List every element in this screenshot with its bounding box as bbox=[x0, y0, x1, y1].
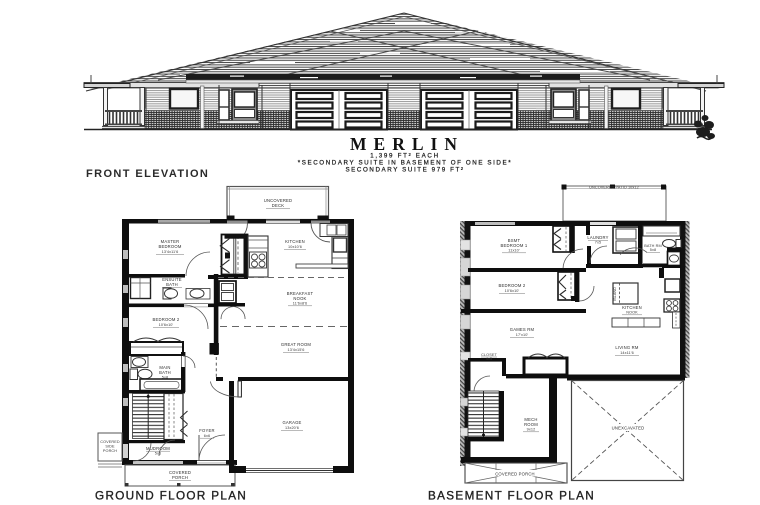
svg-text:13'4x15'6: 13'4x15'6 bbox=[288, 348, 305, 352]
svg-text:*SECONDARY SUITE IN BASEMENT O: *SECONDARY SUITE IN BASEMENT OF ONE SIDE… bbox=[298, 160, 512, 167]
svg-text:BEDROOM 2: BEDROOM 2 bbox=[153, 317, 180, 322]
svg-text:MERLIN: MERLIN bbox=[350, 134, 464, 154]
svg-text:BATH: BATH bbox=[159, 370, 171, 375]
svg-text:KITCHEN: KITCHEN bbox=[285, 239, 305, 244]
svg-text:FRONT ELEVATION: FRONT ELEVATION bbox=[86, 168, 209, 180]
svg-text:GARAGE: GARAGE bbox=[282, 420, 301, 425]
svg-text:11'6x8'6: 11'6x8'6 bbox=[293, 302, 307, 306]
svg-text:9x12: 9x12 bbox=[527, 428, 536, 432]
svg-text:10x10'6: 10x10'6 bbox=[288, 245, 302, 249]
svg-text:1,399 FT² EACH: 1,399 FT² EACH bbox=[370, 153, 440, 160]
svg-text:5x6: 5x6 bbox=[155, 452, 161, 456]
svg-text:GAMES RM: GAMES RM bbox=[510, 327, 535, 332]
svg-text:11x10': 11x10' bbox=[508, 249, 520, 253]
svg-text:ROOM: ROOM bbox=[524, 422, 538, 427]
svg-text:10'6x10': 10'6x10' bbox=[159, 323, 174, 327]
svg-text:GROUND FLOOR PLAN: GROUND FLOOR PLAN bbox=[95, 490, 247, 503]
svg-text:14x11'6: 14x11'6 bbox=[620, 351, 634, 355]
svg-text:13x20'6: 13x20'6 bbox=[285, 426, 299, 430]
svg-text:4x5: 4x5 bbox=[486, 357, 492, 361]
svg-text:BEDROOM 1: BEDROOM 1 bbox=[501, 243, 528, 248]
svg-text:COVERED: COVERED bbox=[100, 440, 120, 444]
svg-text:DECK: DECK bbox=[272, 203, 284, 208]
svg-text:SIDE: SIDE bbox=[105, 445, 115, 449]
svg-text:UNCOVERED PATIO 10x12: UNCOVERED PATIO 10x12 bbox=[589, 186, 639, 190]
svg-text:COVERED PORCH: COVERED PORCH bbox=[495, 472, 535, 477]
svg-text:PORCH: PORCH bbox=[172, 475, 188, 480]
svg-text:BATH: BATH bbox=[166, 282, 178, 287]
svg-text:GREAT ROOM: GREAT ROOM bbox=[281, 342, 312, 347]
svg-text:7x5: 7x5 bbox=[595, 241, 601, 245]
svg-text:LAUNDRY: LAUNDRY bbox=[587, 235, 608, 240]
svg-text:ISLAND: ISLAND bbox=[613, 287, 617, 301]
svg-text:LIVING RM: LIVING RM bbox=[615, 345, 639, 350]
svg-text:10'6x10': 10'6x10' bbox=[505, 289, 520, 293]
svg-text:13'4x11'6: 13'4x11'6 bbox=[162, 250, 179, 254]
svg-text:BASEMENT FLOOR PLAN: BASEMENT FLOOR PLAN bbox=[428, 490, 595, 503]
svg-text:17'x10': 17'x10' bbox=[516, 333, 529, 337]
svg-text:5x8: 5x8 bbox=[650, 248, 656, 252]
svg-text:UNEXCAVATED: UNEXCAVATED bbox=[612, 426, 645, 431]
svg-text:BEDROOM 2: BEDROOM 2 bbox=[499, 283, 526, 288]
svg-text:PORCH: PORCH bbox=[103, 449, 117, 453]
svg-text:BEDROOM: BEDROOM bbox=[158, 244, 181, 249]
svg-text:FOYER: FOYER bbox=[199, 428, 214, 433]
svg-text:SECONDARY SUITE 979 FT²: SECONDARY SUITE 979 FT² bbox=[345, 167, 464, 174]
svg-text:NOOK: NOOK bbox=[626, 311, 638, 315]
svg-text:KITCHEN: KITCHEN bbox=[622, 305, 642, 310]
svg-text:6x6: 6x6 bbox=[204, 434, 210, 438]
svg-text:NOOK: NOOK bbox=[293, 296, 306, 301]
